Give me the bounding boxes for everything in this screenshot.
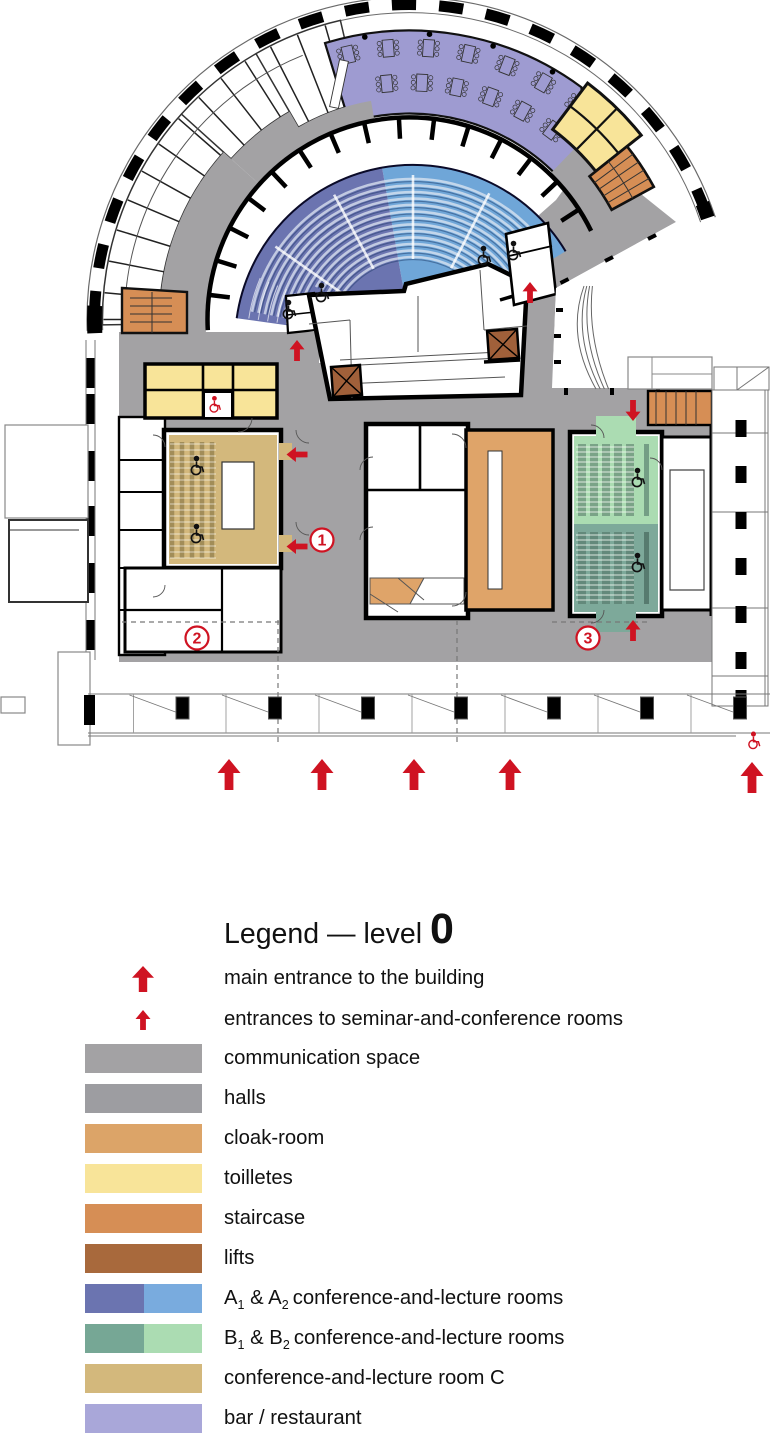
- svg-text:2: 2: [193, 631, 202, 648]
- svg-text:3: 3: [584, 631, 593, 648]
- svg-text:1: 1: [318, 533, 327, 550]
